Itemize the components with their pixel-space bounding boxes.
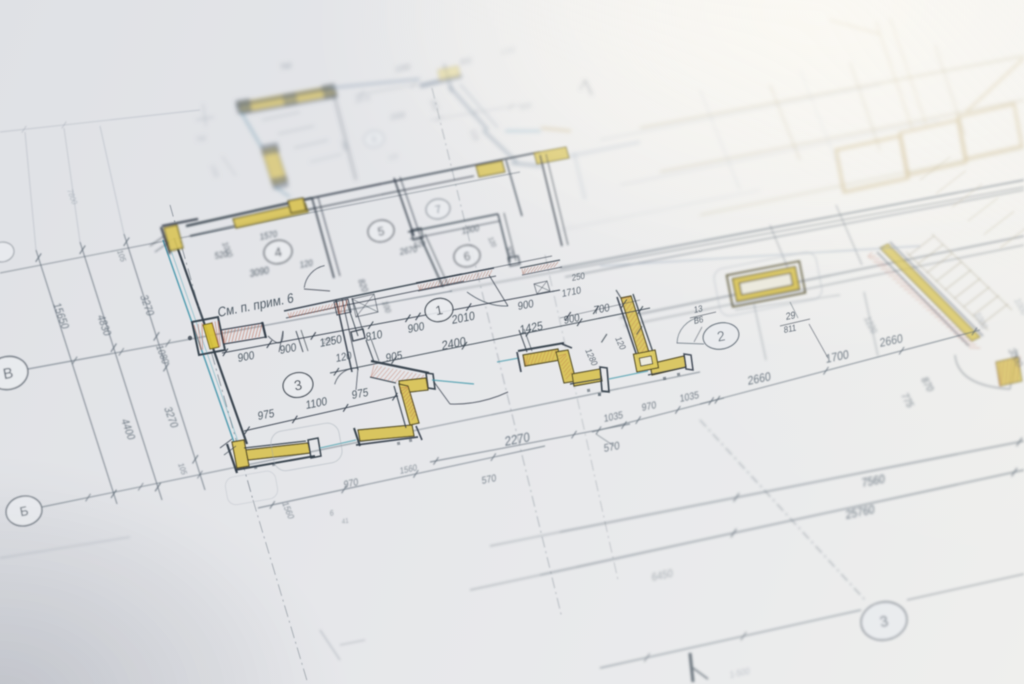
svg-text:1100: 1100 [305,395,327,412]
svg-text:29: 29 [786,310,796,324]
svg-text:25760: 25760 [845,503,875,522]
svg-text:2670: 2670 [355,93,371,105]
svg-text:1570: 1570 [260,228,278,242]
svg-text:6: 6 [329,508,334,518]
svg-text:См. п. прим. 6: См. п. прим. 6 [217,289,294,320]
svg-text:120: 120 [613,336,629,351]
svg-text:6450: 6450 [651,568,673,584]
svg-text:905: 905 [385,349,402,365]
svg-text:2660: 2660 [747,371,771,389]
svg-text:4400: 4400 [118,418,137,441]
svg-text:1710: 1710 [562,285,582,300]
svg-text:4830: 4830 [94,314,113,337]
svg-text:900: 900 [520,101,532,113]
svg-text:1200: 1200 [500,45,516,57]
svg-text:570: 570 [604,440,621,455]
svg-text:1425: 1425 [519,320,543,337]
svg-text:2400: 2400 [441,334,466,354]
svg-text:305: 305 [428,98,441,111]
svg-text:1035: 1035 [603,409,623,425]
svg-text:1500: 1500 [462,222,480,236]
svg-text:3270: 3270 [161,406,180,429]
svg-text:900: 900 [237,349,254,365]
svg-text:975: 975 [257,407,274,423]
svg-text:520: 520 [414,238,426,250]
svg-text:1000: 1000 [1012,297,1024,316]
svg-text:820: 820 [356,278,371,293]
svg-text:1035: 1035 [679,389,699,405]
svg-text:В6: В6 [694,314,704,327]
svg-text:1080: 1080 [153,344,171,365]
svg-text:1500: 1500 [390,110,406,122]
svg-text:15650: 15650 [50,302,71,330]
svg-text:900: 900 [460,56,472,68]
svg-text:1-500: 1-500 [729,665,750,680]
svg-text:120: 120 [468,128,481,141]
svg-text:7560: 7560 [861,473,885,490]
svg-text:1200: 1200 [395,62,411,74]
svg-text:105: 105 [176,462,189,475]
svg-text:900: 900 [518,298,535,313]
svg-text:750: 750 [196,135,207,144]
svg-text:250: 250 [572,270,586,283]
svg-text:1300: 1300 [208,164,220,179]
svg-text:900: 900 [279,341,296,357]
svg-text:1560: 1560 [280,501,297,520]
svg-text:2270: 2270 [504,429,530,449]
svg-text:1700: 1700 [825,349,849,367]
svg-text:775: 775 [898,392,916,409]
svg-text:1280: 1280 [583,348,601,367]
svg-text:1220: 1220 [862,315,880,334]
svg-text:7800: 7800 [65,188,80,205]
svg-text:970: 970 [641,399,656,414]
svg-text:870: 870 [918,376,936,393]
svg-text:3270: 3270 [137,294,156,317]
svg-text:750: 750 [280,61,292,73]
svg-text:2010: 2010 [451,310,475,327]
svg-text:811: 811 [784,322,797,335]
svg-text:810: 810 [365,328,382,344]
svg-text:970: 970 [343,476,358,491]
svg-text:3090: 3090 [250,265,270,280]
svg-text:570: 570 [481,472,496,487]
svg-text:120: 120 [300,257,314,270]
svg-text:105: 105 [115,249,128,262]
svg-text:780: 780 [338,138,351,151]
svg-text:120: 120 [388,153,399,162]
svg-text:41: 41 [342,517,349,526]
svg-text:120: 120 [486,237,497,249]
svg-text:2660: 2660 [879,333,903,351]
svg-text:900: 900 [407,320,424,336]
svg-text:975: 975 [351,386,368,402]
